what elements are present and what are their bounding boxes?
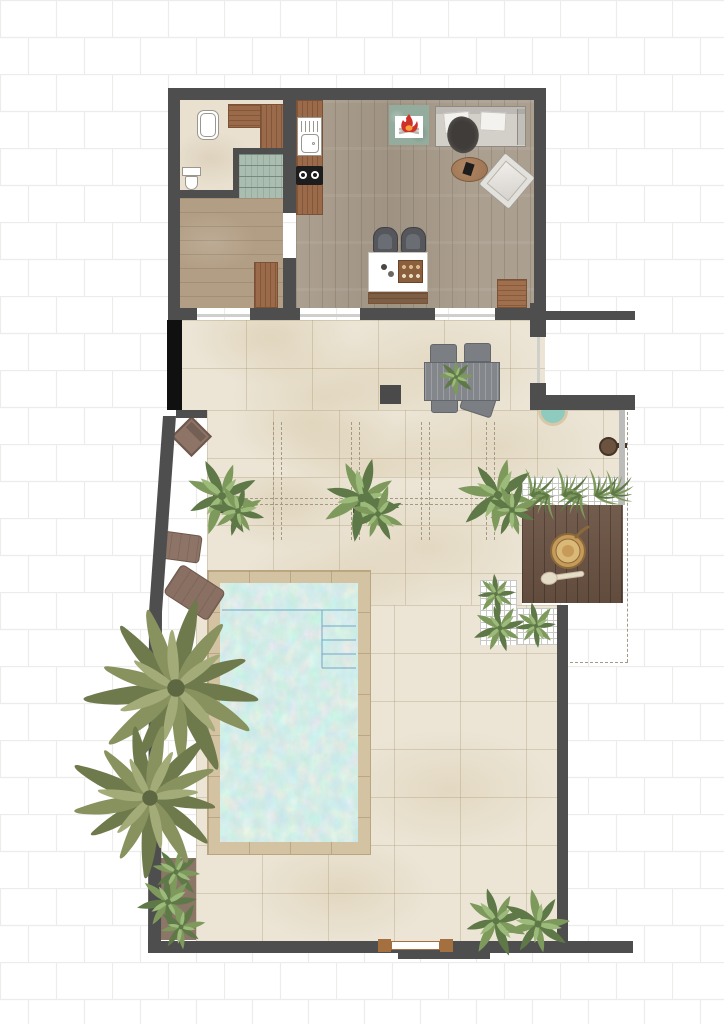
entry-gate bbox=[391, 941, 440, 950]
wall-pillar bbox=[167, 320, 182, 410]
sofa-armrest bbox=[517, 109, 525, 145]
lattice-planter bbox=[517, 608, 557, 645]
cooktop bbox=[296, 166, 323, 185]
gate-post bbox=[440, 939, 453, 952]
burner bbox=[311, 171, 319, 179]
bathtub-rim bbox=[200, 113, 216, 137]
gate-post bbox=[378, 939, 391, 952]
wardrobe bbox=[260, 104, 285, 152]
pergola-dash-line bbox=[429, 422, 430, 540]
wall-courtyard-south bbox=[530, 395, 635, 410]
bread-crate bbox=[398, 260, 423, 283]
stool-seat bbox=[378, 234, 392, 249]
pergola-dash-line bbox=[359, 422, 360, 540]
dining-chair bbox=[464, 343, 491, 362]
table-decor bbox=[462, 162, 474, 176]
toilet-tank bbox=[182, 167, 201, 176]
door-mat bbox=[497, 279, 527, 308]
wall-east-lower bbox=[530, 303, 546, 337]
garden-fence bbox=[619, 408, 625, 505]
wall-east bbox=[534, 100, 546, 303]
floor-drain bbox=[380, 385, 401, 404]
boundary-wall-east bbox=[557, 605, 568, 945]
bar-stool bbox=[373, 227, 398, 253]
wall-courtyard-north bbox=[546, 311, 635, 320]
wall-stub bbox=[176, 410, 207, 418]
stair-wall bbox=[233, 148, 283, 154]
island-base bbox=[368, 292, 428, 304]
pergola-dash-line bbox=[351, 422, 352, 540]
jar bbox=[381, 264, 387, 270]
toilet-bowl bbox=[185, 176, 198, 190]
sun-cushion bbox=[158, 530, 202, 563]
fireplace-hearth bbox=[395, 116, 423, 138]
grass-planter-box bbox=[522, 477, 623, 505]
pergola-dash-line bbox=[421, 422, 422, 540]
wall-north bbox=[168, 88, 546, 100]
wall-interior bbox=[283, 100, 296, 213]
sink-drain bbox=[312, 142, 315, 145]
wall-south-segment bbox=[360, 308, 435, 320]
sliding-door bbox=[435, 314, 495, 317]
dining-table bbox=[424, 362, 500, 401]
sofa-pillow bbox=[480, 111, 507, 131]
planter-pot bbox=[490, 491, 510, 511]
wood-deck bbox=[522, 505, 623, 603]
wall-south-segment bbox=[168, 308, 197, 320]
kitchen-sink bbox=[297, 117, 322, 156]
pergola-dash-line bbox=[273, 422, 274, 540]
pergola-dash-line bbox=[486, 422, 487, 540]
pool-water bbox=[220, 583, 358, 842]
sliding-door bbox=[197, 314, 250, 317]
wardrobe bbox=[254, 262, 278, 308]
wall-interior bbox=[283, 258, 296, 308]
property-dash-line bbox=[627, 412, 628, 662]
stool-seat bbox=[406, 234, 420, 249]
bar-stool bbox=[401, 227, 426, 253]
burner bbox=[299, 171, 307, 179]
floor-plan bbox=[0, 0, 724, 1024]
bathtub bbox=[197, 110, 219, 140]
planter-pot bbox=[213, 493, 233, 513]
garden-bed bbox=[158, 858, 196, 940]
lattice-planter bbox=[480, 580, 517, 645]
sink-drainer bbox=[301, 121, 319, 132]
sink-basin bbox=[301, 134, 319, 153]
planter-pot bbox=[353, 493, 373, 513]
jar bbox=[388, 271, 394, 277]
dining-chair bbox=[430, 344, 457, 363]
property-dash-line bbox=[570, 662, 628, 663]
pergola-dash-line bbox=[210, 504, 518, 505]
pergola-dash-line bbox=[494, 422, 495, 540]
sliding-door bbox=[537, 337, 540, 383]
wall-south-segment bbox=[250, 308, 300, 320]
wall-west bbox=[168, 100, 180, 320]
boundary-wall-step bbox=[398, 951, 490, 959]
pergola-dash-line bbox=[281, 422, 282, 540]
wall-bathroom bbox=[180, 190, 235, 198]
sliding-door bbox=[300, 314, 360, 317]
shower-head bbox=[599, 437, 618, 456]
bar-island bbox=[368, 252, 428, 292]
staircase bbox=[239, 154, 283, 198]
stair-wall bbox=[233, 148, 239, 198]
pergola-dash-line bbox=[210, 498, 518, 499]
fireplace bbox=[389, 105, 429, 145]
